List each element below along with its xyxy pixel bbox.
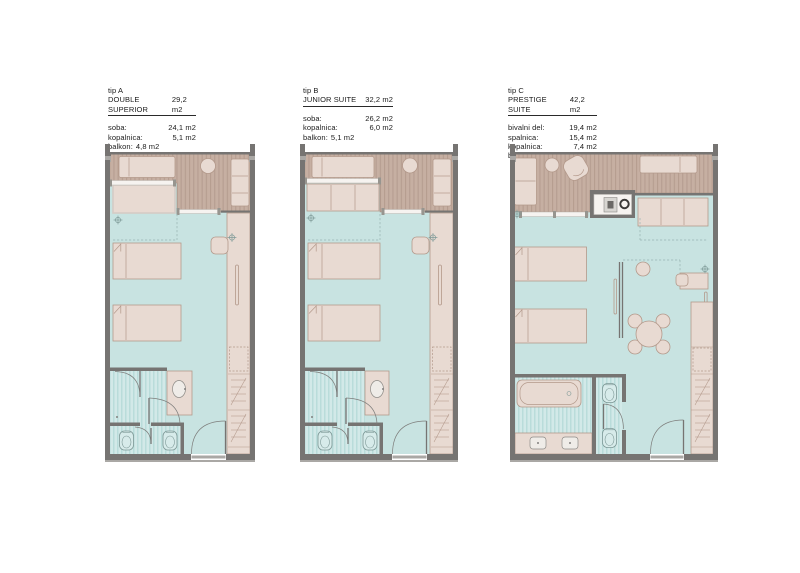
balcony-sofa <box>515 158 537 205</box>
minibar <box>693 348 711 371</box>
room-label: spalnica: <box>508 133 539 142</box>
plan-type-label: tip B <box>303 86 393 95</box>
bathtub <box>517 380 581 407</box>
left-wall <box>510 160 515 458</box>
minibar <box>230 347 249 371</box>
room-area: 5,1 m2 <box>172 133 196 142</box>
room-row: soba: 24,1 m2 <box>108 123 196 132</box>
wardrobe-strip <box>691 302 713 454</box>
room-area: 6,0 m2 <box>369 123 393 132</box>
room-area: 24,1 m2 <box>168 123 196 132</box>
balcony-row: balkon: 5,1 m2 <box>303 133 393 142</box>
room-label: bivalni del: <box>508 123 545 132</box>
bed <box>113 305 181 341</box>
room-area: 19,4 m2 <box>569 123 597 132</box>
plan-total-area: 42,2 m2 <box>570 95 597 114</box>
sofa <box>638 198 708 226</box>
plan-name: PRESTIGE SUITE <box>508 95 570 114</box>
bidet <box>363 431 377 450</box>
room-area: 26,2 m2 <box>365 114 393 123</box>
room-row: spalnica: 15,4 m2 <box>508 133 597 142</box>
plan-total-area: 29,2 m2 <box>172 95 196 114</box>
balcony-railing <box>304 152 454 155</box>
balcony-railing <box>109 152 251 155</box>
bottom-wall <box>105 454 191 460</box>
floor-plans-sheet: { "colors": { "wall": "#767472", "wallL"… <box>0 0 800 573</box>
vanity-sink <box>173 381 186 398</box>
balcony-armchair <box>231 159 249 206</box>
room-label: kopalnica: <box>108 133 143 142</box>
bed <box>113 243 181 279</box>
toilet <box>120 431 134 450</box>
bed <box>515 247 587 281</box>
right-wall <box>713 160 718 458</box>
room-row: bivalni del: 19,4 m2 <box>508 123 597 132</box>
plan-name: DOUBLE SUPERIOR <box>108 95 172 114</box>
sofa <box>304 178 381 212</box>
side-table <box>636 262 650 276</box>
plan-c-floorplan <box>510 142 718 462</box>
plan-total-area: 32,2 m2 <box>365 95 393 104</box>
balcony-label: balkon: <box>303 133 328 142</box>
kitchenette <box>590 190 635 218</box>
bottom-wall <box>300 454 392 460</box>
balcony-lounger <box>312 157 374 178</box>
room-row: kopalnica: 5,1 m2 <box>108 133 196 142</box>
balcony-table <box>201 159 216 174</box>
room-area: 15,4 m2 <box>569 133 597 142</box>
bed <box>308 243 380 279</box>
right-wall <box>453 160 458 458</box>
plan-name: JUNIOR SUITE <box>303 95 356 104</box>
balcony-armchair <box>433 159 451 206</box>
desk-chair <box>412 237 429 254</box>
balcony-table <box>545 158 559 172</box>
bidet <box>163 431 177 450</box>
window-bench <box>109 180 176 214</box>
plan-b-floorplan <box>300 142 458 462</box>
minibar <box>433 347 452 371</box>
room-label: soba: <box>108 123 127 132</box>
plan-b-header: tip B JUNIOR SUITE 32,2 m2 soba: 26,2 m2… <box>303 86 393 142</box>
bathroom <box>305 368 389 455</box>
plan-title-row: JUNIOR SUITE 32,2 m2 <box>303 95 393 106</box>
left-wall <box>105 160 110 458</box>
wardrobe-strip <box>227 213 250 454</box>
bed <box>308 305 380 341</box>
balcony-railing <box>514 152 714 155</box>
balcony-table <box>403 158 418 173</box>
bidet <box>603 429 617 448</box>
plan-type-label: tip A <box>108 86 196 95</box>
dining-table <box>636 321 662 347</box>
shower-drain <box>311 416 313 418</box>
toilet <box>603 384 617 403</box>
bed <box>515 309 587 343</box>
right-wall <box>250 160 255 458</box>
plan-title-row: DOUBLE SUPERIOR 29,2 m2 <box>108 95 196 116</box>
vanity-sink <box>371 381 384 398</box>
balcony-bench <box>640 156 697 173</box>
bottom-wall <box>510 454 650 460</box>
bathroom <box>110 368 192 455</box>
toilet <box>318 431 332 450</box>
plan-a-floorplan <box>105 142 255 462</box>
wardrobe-strip <box>430 213 453 454</box>
room-label: soba: <box>303 114 322 123</box>
balcony-lounger <box>119 157 175 178</box>
plan-title-row: PRESTIGE SUITE 42,2 m2 <box>508 95 597 116</box>
left-wall <box>300 160 305 458</box>
room-row: soba: 26,2 m2 <box>303 114 393 123</box>
room-row: kopalnica: 6,0 m2 <box>303 123 393 132</box>
room-label: kopalnica: <box>303 123 338 132</box>
desk-chair <box>676 274 688 286</box>
shower-drain <box>116 416 118 418</box>
desk-chair <box>211 237 228 254</box>
bathroom <box>515 374 626 454</box>
balcony-area: 5,1 m2 <box>331 133 355 142</box>
vanity <box>515 433 592 454</box>
plan-type-label: tip C <box>508 86 597 95</box>
